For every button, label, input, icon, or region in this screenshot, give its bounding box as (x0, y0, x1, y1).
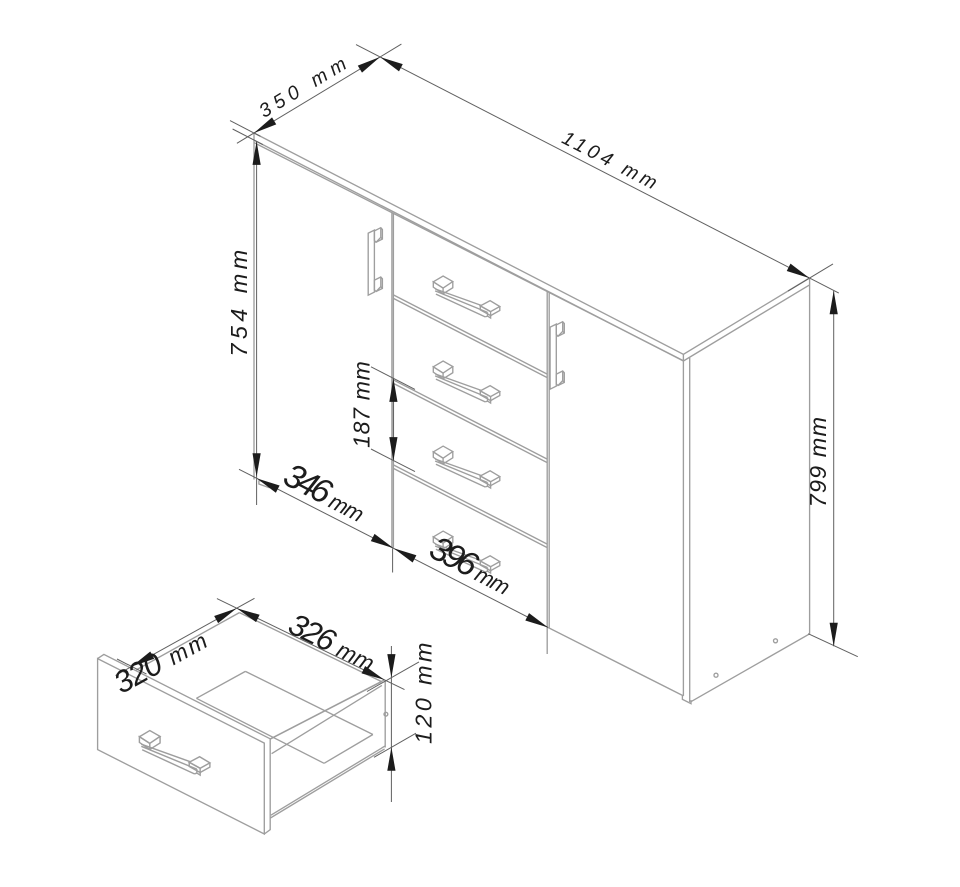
svg-text:187 mm: 187 mm (348, 361, 374, 448)
svg-text:754 mm: 754 mm (226, 245, 252, 356)
svg-text:799 mm: 799 mm (805, 416, 831, 508)
svg-text:120 mm: 120 mm (411, 639, 437, 744)
